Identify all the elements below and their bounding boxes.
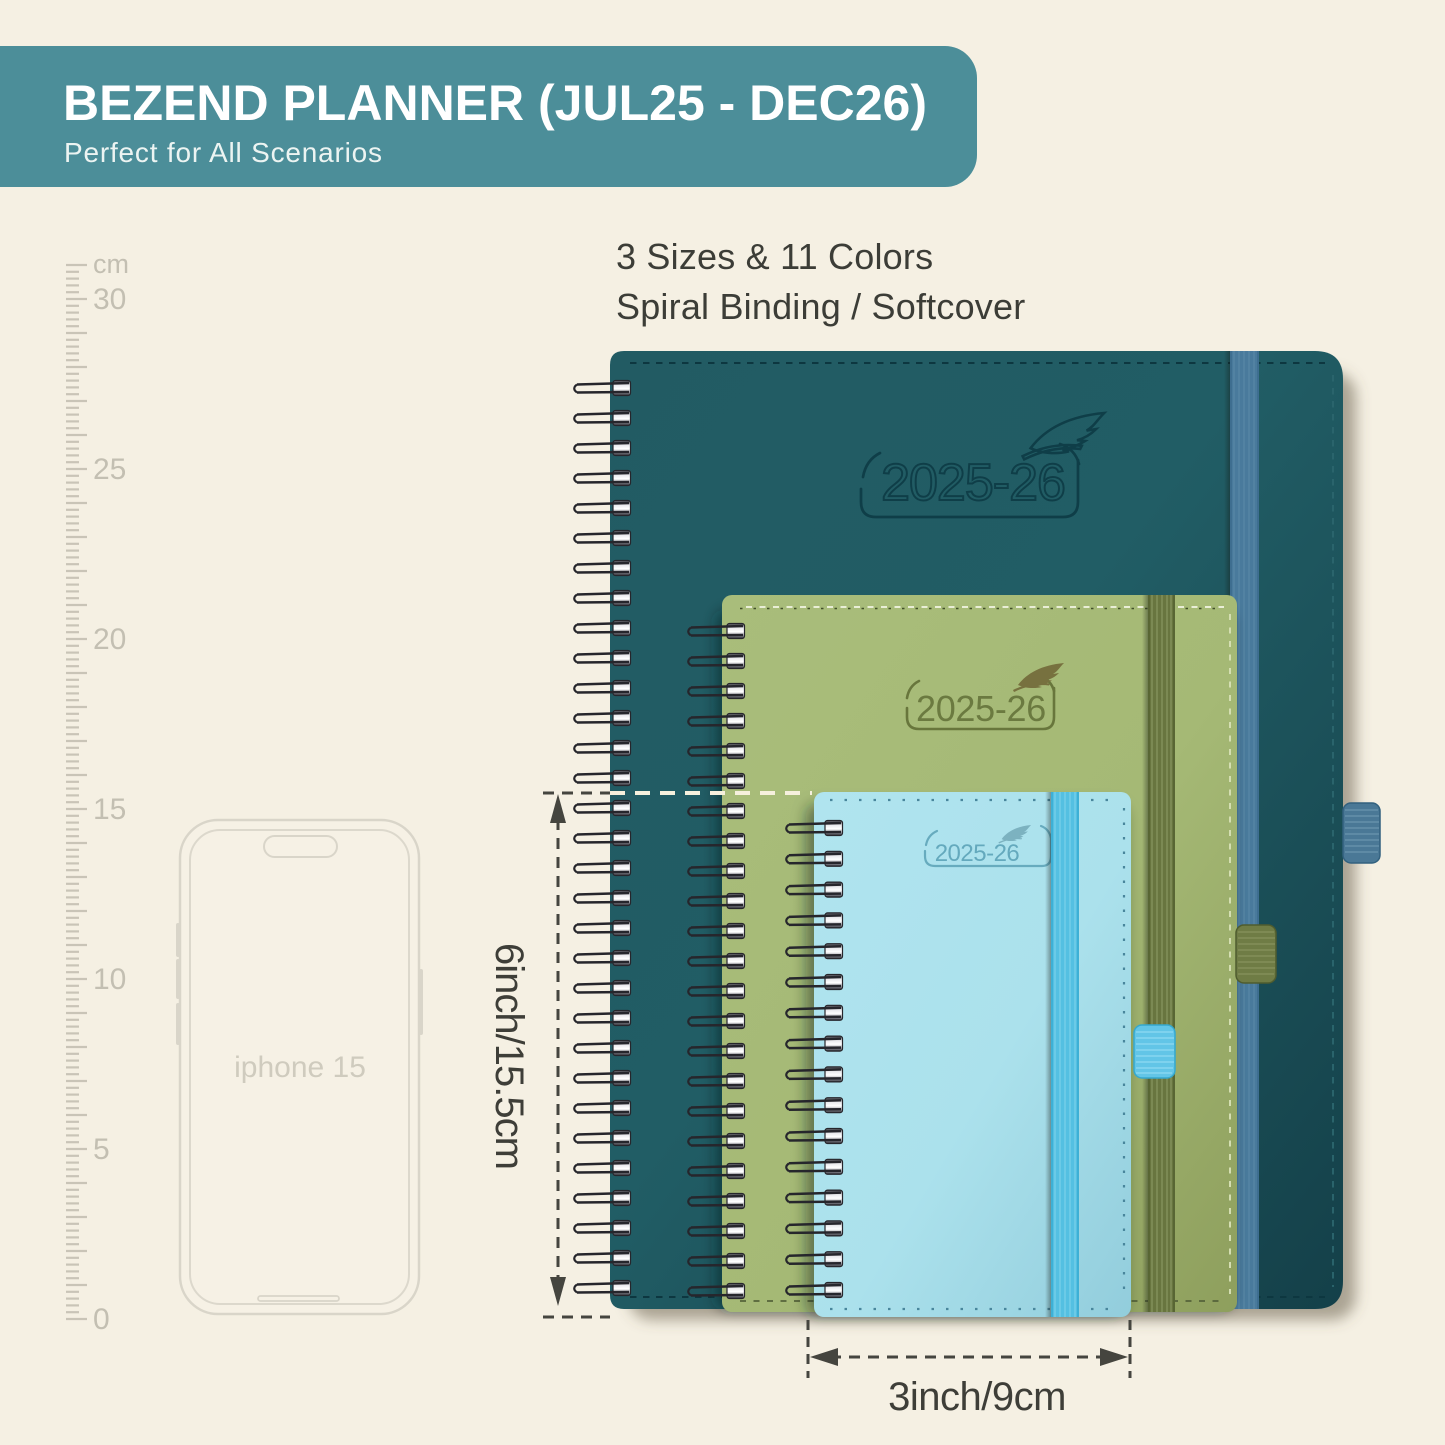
svg-text:2025-26: 2025-26 bbox=[935, 840, 1020, 867]
svg-text:2025-26: 2025-26 bbox=[881, 454, 1065, 512]
svg-text:2025-26: 2025-26 bbox=[916, 688, 1046, 729]
svg-text:3inch/9cm: 3inch/9cm bbox=[888, 1375, 1066, 1419]
svg-text:6inch/15.5cm: 6inch/15.5cm bbox=[487, 943, 531, 1169]
